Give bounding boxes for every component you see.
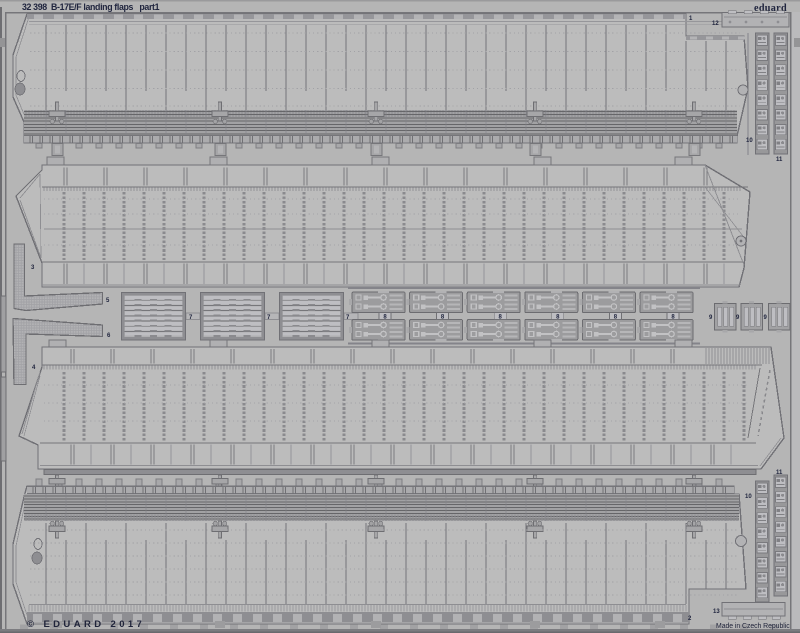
svg-text:© EDUARD 2017: © EDUARD 2017 bbox=[27, 619, 145, 630]
svg-text:32 398 B-17E/F landing flaps: 32 398 B-17E/F landing flaps part1 bbox=[22, 2, 160, 12]
svg-text:13: 13 bbox=[713, 609, 720, 615]
svg-text:10: 10 bbox=[746, 138, 753, 144]
svg-text:11: 11 bbox=[776, 157, 783, 163]
svg-text:11: 11 bbox=[776, 470, 783, 476]
svg-text:Made in Czech Republic: Made in Czech Republic bbox=[716, 623, 790, 630]
svg-text:10: 10 bbox=[745, 494, 752, 500]
svg-text:12: 12 bbox=[712, 21, 719, 27]
